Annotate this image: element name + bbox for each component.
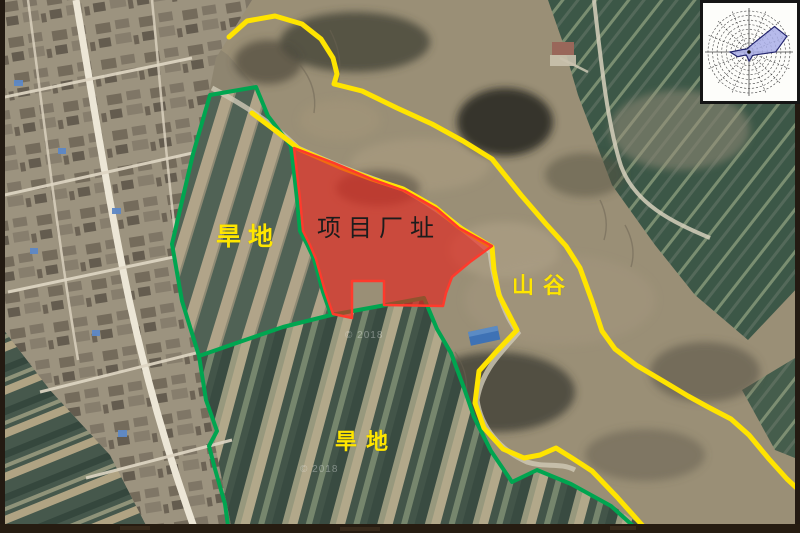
imagery-watermark: © 2018 — [300, 464, 338, 475]
farm-building-roof — [552, 42, 574, 55]
imagery-watermark: © 2018 — [345, 330, 383, 341]
label-dryland-south: 旱地 — [335, 424, 397, 456]
wind-rose-chart — [704, 4, 797, 101]
label-dryland-north: 旱地 — [216, 217, 280, 253]
satellite-basemap — [0, 0, 800, 533]
wind-rose-inset — [700, 0, 800, 104]
label-valley: 山谷 — [512, 268, 574, 300]
label-project-site: 项目厂址 — [317, 208, 441, 243]
farm-building-yard — [550, 55, 576, 66]
satellite-site-map: 旱地 项目厂址 山谷 旱地 © 2018 © 2018 — [0, 0, 800, 533]
